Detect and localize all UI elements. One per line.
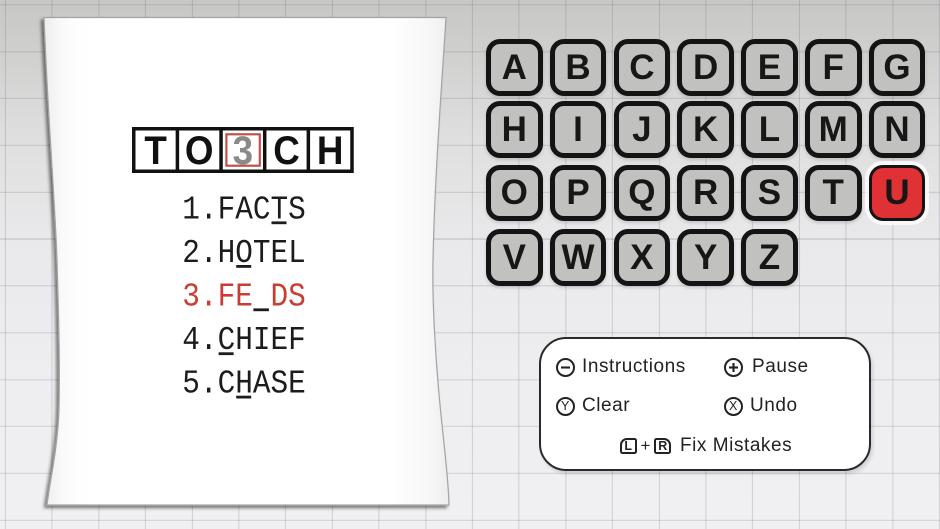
svg-text:4.CHIEF: 4.CHIEF — [182, 322, 305, 359]
svg-text:H: H — [317, 129, 344, 174]
svg-text:1.FACTS: 1.FACTS — [182, 192, 305, 229]
svg-text:3.FE DS: 3.FE DS — [182, 279, 305, 316]
svg-text:T: T — [144, 129, 167, 174]
svg-text:3: 3 — [233, 129, 253, 174]
svg-text:C: C — [273, 129, 300, 174]
svg-text:O: O — [185, 129, 214, 174]
